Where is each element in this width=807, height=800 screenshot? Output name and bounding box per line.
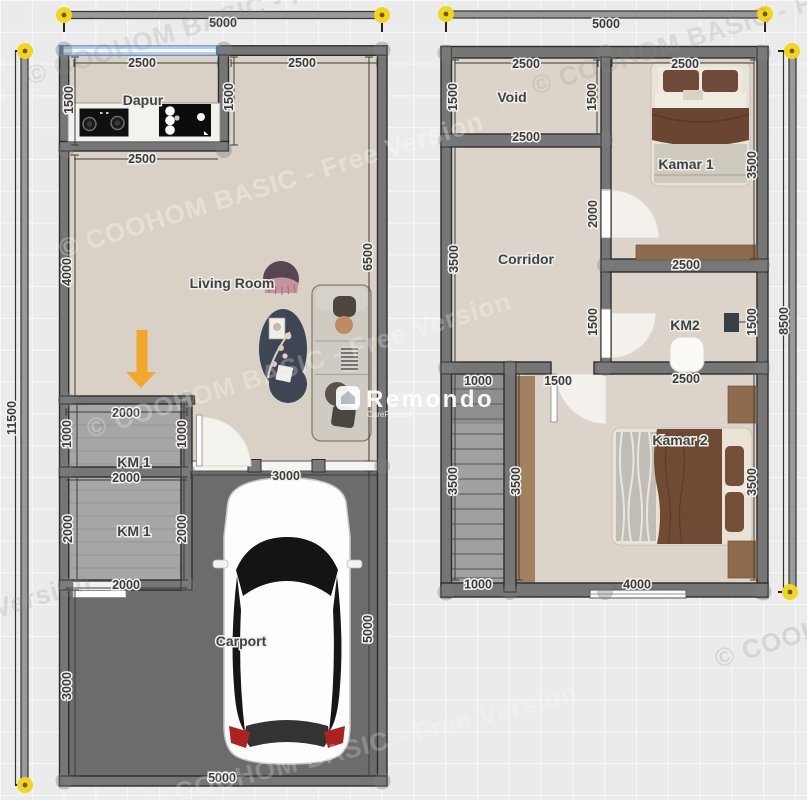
- svg-text:3500: 3500: [745, 468, 759, 496]
- svg-text:1000: 1000: [60, 420, 74, 448]
- svg-text:Kamar 1: Kamar 1: [658, 156, 713, 172]
- svg-text:3500: 3500: [509, 467, 523, 495]
- svg-text:2500: 2500: [671, 57, 699, 71]
- svg-text:3000: 3000: [272, 469, 300, 483]
- svg-text:Remondo: Remondo: [366, 386, 494, 413]
- svg-text:Dapur: Dapur: [123, 92, 164, 108]
- svg-text:Kamar 2: Kamar 2: [652, 432, 707, 448]
- svg-text:1000: 1000: [464, 578, 492, 592]
- svg-text:5000: 5000: [361, 615, 375, 643]
- svg-text:1500: 1500: [446, 83, 460, 111]
- svg-text:1500: 1500: [62, 86, 76, 114]
- svg-text:Carport: Carport: [216, 633, 267, 649]
- svg-text:1500: 1500: [745, 308, 759, 336]
- svg-text:2500: 2500: [288, 56, 316, 70]
- svg-text:KM 1: KM 1: [117, 523, 151, 539]
- svg-text:3500: 3500: [447, 245, 461, 273]
- svg-text:11500: 11500: [5, 401, 19, 435]
- svg-text:2000: 2000: [61, 515, 75, 543]
- svg-text:8500: 8500: [777, 307, 791, 335]
- svg-text:2500: 2500: [672, 372, 700, 386]
- svg-text:3500: 3500: [745, 151, 759, 179]
- svg-text:1500: 1500: [585, 83, 599, 111]
- svg-text:CareProperti: CareProperti: [367, 410, 413, 419]
- svg-text:Living Room: Living Room: [190, 275, 275, 291]
- svg-text:2500: 2500: [512, 130, 540, 144]
- svg-text:2000: 2000: [586, 200, 600, 228]
- svg-text:5000: 5000: [592, 17, 620, 31]
- svg-text:1500: 1500: [586, 308, 600, 336]
- svg-text:2000: 2000: [112, 578, 140, 592]
- svg-text:3500: 3500: [446, 467, 460, 495]
- svg-text:KM2: KM2: [670, 317, 700, 333]
- svg-text:3000: 3000: [60, 672, 74, 700]
- svg-text:2500: 2500: [128, 152, 156, 166]
- svg-text:2000: 2000: [175, 515, 189, 543]
- svg-text:Corridor: Corridor: [498, 251, 555, 267]
- svg-text:2000: 2000: [112, 471, 140, 485]
- svg-text:KM 1: KM 1: [117, 454, 151, 470]
- svg-text:6500: 6500: [361, 243, 375, 271]
- svg-text:1500: 1500: [222, 83, 236, 111]
- svg-text:4000: 4000: [623, 578, 651, 592]
- svg-text:2500: 2500: [672, 258, 700, 272]
- svg-text:1000: 1000: [175, 420, 189, 448]
- svg-text:1500: 1500: [544, 374, 572, 388]
- svg-text:Void: Void: [497, 89, 526, 105]
